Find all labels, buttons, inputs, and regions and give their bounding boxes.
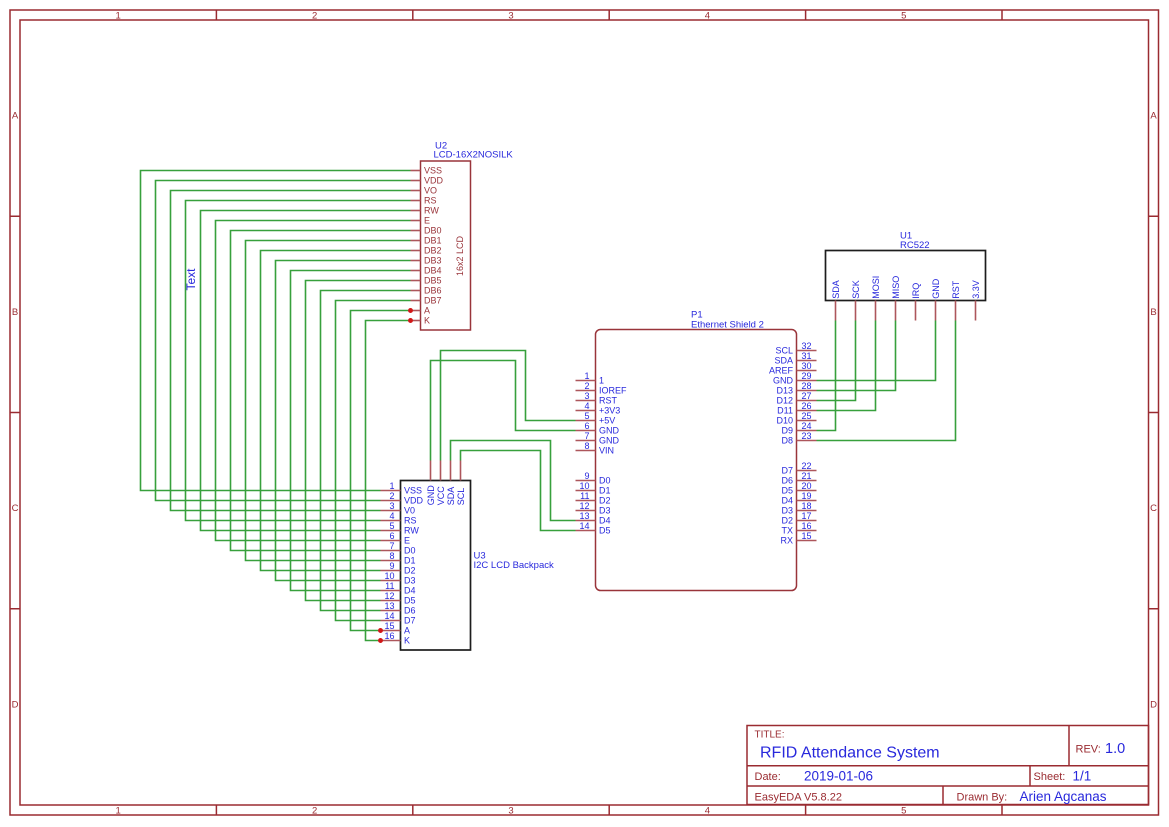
svg-text:D10: D10 — [776, 416, 793, 426]
svg-text:1: 1 — [116, 11, 121, 22]
svg-text:17: 17 — [802, 511, 812, 521]
svg-text:VO: VO — [424, 186, 437, 196]
svg-text:DB3: DB3 — [424, 256, 442, 266]
svg-text:1: 1 — [389, 481, 394, 491]
svg-text:REV:: REV: — [1076, 744, 1101, 756]
svg-text:D3: D3 — [781, 506, 793, 516]
svg-text:GND: GND — [773, 376, 794, 386]
svg-text:VSS: VSS — [424, 166, 442, 176]
svg-text:K: K — [424, 316, 430, 326]
svg-text:RW: RW — [424, 206, 439, 216]
svg-text:1: 1 — [584, 371, 589, 381]
svg-text:D: D — [12, 699, 19, 710]
svg-text:18: 18 — [802, 501, 812, 511]
svg-text:IOREF: IOREF — [599, 386, 627, 396]
svg-text:4: 4 — [705, 11, 710, 22]
svg-text:RX: RX — [780, 536, 793, 546]
svg-text:MOSI: MOSI — [871, 276, 881, 299]
svg-text:23: 23 — [802, 431, 812, 441]
svg-text:D8: D8 — [781, 436, 793, 446]
svg-text:24: 24 — [802, 421, 812, 431]
svg-text:13: 13 — [384, 601, 394, 611]
svg-text:25: 25 — [802, 411, 812, 421]
svg-text:D1: D1 — [404, 556, 416, 566]
svg-text:2: 2 — [312, 805, 317, 816]
svg-text:C: C — [1150, 503, 1157, 514]
svg-text:4: 4 — [389, 511, 394, 521]
svg-text:14: 14 — [384, 611, 394, 621]
svg-text:1: 1 — [599, 376, 604, 386]
svg-text:28: 28 — [802, 381, 812, 391]
svg-text:TITLE:: TITLE: — [755, 730, 785, 741]
svg-text:RC522: RC522 — [900, 240, 930, 251]
svg-text:DB4: DB4 — [424, 266, 442, 276]
svg-text:13: 13 — [579, 511, 589, 521]
svg-text:D6: D6 — [781, 476, 793, 486]
svg-text:D13: D13 — [776, 386, 793, 396]
svg-text:SCL: SCL — [775, 346, 793, 356]
svg-text:VDD: VDD — [404, 496, 424, 506]
svg-text:Date:: Date: — [755, 771, 781, 783]
svg-text:14: 14 — [579, 521, 589, 531]
svg-text:19: 19 — [802, 491, 812, 501]
svg-text:7: 7 — [389, 541, 394, 551]
svg-text:8: 8 — [389, 551, 394, 561]
svg-text:D2: D2 — [599, 496, 611, 506]
svg-text:SCK: SCK — [851, 280, 861, 299]
svg-text:6: 6 — [584, 421, 589, 431]
svg-text:AREF: AREF — [769, 366, 794, 376]
svg-text:+3V3: +3V3 — [599, 406, 620, 416]
svg-text:11: 11 — [580, 491, 589, 501]
svg-text:31: 31 — [802, 351, 812, 361]
svg-text:LCD-16X2NOSILK: LCD-16X2NOSILK — [434, 150, 514, 161]
svg-text:SCL: SCL — [456, 488, 466, 506]
svg-text:2: 2 — [312, 11, 317, 22]
svg-text:20: 20 — [802, 481, 812, 491]
svg-text:K: K — [404, 636, 410, 646]
svg-text:10: 10 — [579, 481, 589, 491]
svg-text:21: 21 — [802, 471, 812, 481]
svg-text:DB7: DB7 — [424, 296, 442, 306]
svg-text:3: 3 — [584, 391, 589, 401]
svg-text:D3: D3 — [404, 576, 416, 586]
svg-text:29: 29 — [802, 371, 812, 381]
svg-text:D7: D7 — [781, 466, 793, 476]
svg-text:26: 26 — [802, 401, 812, 411]
svg-text:Ethernet Shield 2: Ethernet Shield 2 — [691, 320, 764, 331]
svg-text:+5V: +5V — [599, 416, 615, 426]
svg-text:TX: TX — [781, 526, 793, 536]
svg-text:SDA: SDA — [774, 356, 793, 366]
svg-text:12: 12 — [384, 591, 394, 601]
svg-text:15: 15 — [802, 531, 812, 541]
svg-text:30: 30 — [802, 361, 812, 371]
svg-text:D0: D0 — [599, 476, 611, 486]
svg-text:A: A — [12, 111, 19, 122]
svg-text:2: 2 — [389, 491, 394, 501]
svg-text:16: 16 — [802, 521, 812, 531]
svg-text:Arien Agcanas: Arien Agcanas — [1020, 789, 1107, 804]
svg-text:D0: D0 — [404, 546, 416, 556]
svg-text:SDA: SDA — [831, 280, 841, 299]
svg-text:A: A — [1150, 111, 1157, 122]
svg-text:D5: D5 — [781, 486, 793, 496]
svg-text:RST: RST — [951, 280, 961, 299]
svg-text:Text: Text — [184, 268, 198, 291]
svg-text:9: 9 — [584, 471, 589, 481]
svg-text:D2: D2 — [781, 516, 793, 526]
svg-text:DB1: DB1 — [424, 236, 442, 246]
svg-text:RS: RS — [424, 196, 437, 206]
svg-text:Drawn By:: Drawn By: — [957, 792, 1008, 804]
svg-text:DB5: DB5 — [424, 276, 442, 286]
svg-text:E: E — [424, 216, 430, 226]
svg-text:16x2 LCD: 16x2 LCD — [455, 235, 465, 276]
svg-text:15: 15 — [384, 621, 394, 631]
svg-text:5: 5 — [584, 411, 589, 421]
svg-text:2: 2 — [584, 381, 589, 391]
svg-text:GND: GND — [426, 485, 436, 506]
svg-text:27: 27 — [802, 391, 812, 401]
svg-text:D2: D2 — [404, 566, 416, 576]
svg-text:4: 4 — [584, 401, 589, 411]
svg-text:D6: D6 — [404, 606, 416, 616]
svg-text:A: A — [404, 626, 410, 636]
svg-text:D4: D4 — [781, 496, 793, 506]
svg-text:D7: D7 — [404, 616, 416, 626]
svg-text:1/1: 1/1 — [1073, 769, 1092, 784]
svg-text:D11: D11 — [777, 406, 793, 416]
svg-text:7: 7 — [584, 431, 589, 441]
svg-text:D5: D5 — [599, 526, 611, 536]
svg-text:3: 3 — [389, 501, 394, 511]
svg-text:4: 4 — [705, 805, 710, 816]
svg-text:D4: D4 — [404, 586, 416, 596]
svg-text:2019-01-06: 2019-01-06 — [804, 769, 873, 784]
svg-text:5: 5 — [389, 521, 394, 531]
svg-text:10: 10 — [384, 571, 394, 581]
svg-text:RS: RS — [404, 516, 417, 526]
svg-text:VSS: VSS — [404, 486, 422, 496]
svg-text:D9: D9 — [781, 426, 793, 436]
svg-text:D1: D1 — [599, 486, 611, 496]
svg-text:VIN: VIN — [599, 446, 614, 456]
svg-text:12: 12 — [579, 501, 589, 511]
svg-text:DB0: DB0 — [424, 226, 442, 236]
svg-text:DB2: DB2 — [424, 246, 442, 256]
svg-text:3.3V: 3.3V — [971, 280, 981, 299]
svg-text:5: 5 — [901, 805, 906, 816]
svg-text:3: 3 — [508, 805, 513, 816]
svg-text:EasyEDA V5.8.22: EasyEDA V5.8.22 — [755, 792, 842, 804]
svg-text:C: C — [12, 503, 19, 514]
svg-text:IRQ: IRQ — [911, 283, 921, 299]
svg-text:D12: D12 — [776, 396, 793, 406]
svg-text:GND: GND — [931, 278, 941, 299]
svg-text:B: B — [12, 307, 18, 318]
svg-text:DB6: DB6 — [424, 286, 442, 296]
svg-text:E: E — [404, 536, 410, 546]
svg-text:V0: V0 — [404, 506, 415, 516]
svg-text:D: D — [1150, 699, 1157, 710]
svg-text:22: 22 — [802, 461, 812, 471]
svg-text:GND: GND — [599, 426, 620, 436]
svg-text:VCC: VCC — [436, 486, 446, 506]
svg-text:I2C LCD Backpack: I2C LCD Backpack — [474, 560, 555, 571]
svg-text:SDA: SDA — [446, 487, 456, 506]
svg-text:Sheet:: Sheet: — [1034, 771, 1066, 783]
svg-text:A: A — [424, 306, 430, 316]
svg-text:5: 5 — [901, 11, 906, 22]
svg-text:VDD: VDD — [424, 176, 444, 186]
svg-text:RST: RST — [599, 396, 618, 406]
svg-text:RFID Attendance System: RFID Attendance System — [760, 745, 940, 762]
svg-text:8: 8 — [584, 441, 589, 451]
svg-text:RW: RW — [404, 526, 419, 536]
svg-text:16: 16 — [384, 631, 394, 641]
svg-text:9: 9 — [389, 561, 394, 571]
svg-text:MISO: MISO — [891, 276, 901, 299]
svg-text:3: 3 — [508, 11, 513, 22]
svg-text:B: B — [1150, 307, 1156, 318]
svg-text:D5: D5 — [404, 596, 416, 606]
svg-text:1: 1 — [116, 805, 121, 816]
svg-text:D3: D3 — [599, 506, 611, 516]
svg-text:32: 32 — [802, 341, 812, 351]
svg-text:D4: D4 — [599, 516, 611, 526]
svg-text:GND: GND — [599, 436, 620, 446]
svg-text:11: 11 — [385, 581, 394, 591]
svg-text:1.0: 1.0 — [1105, 741, 1125, 757]
svg-text:6: 6 — [389, 531, 394, 541]
